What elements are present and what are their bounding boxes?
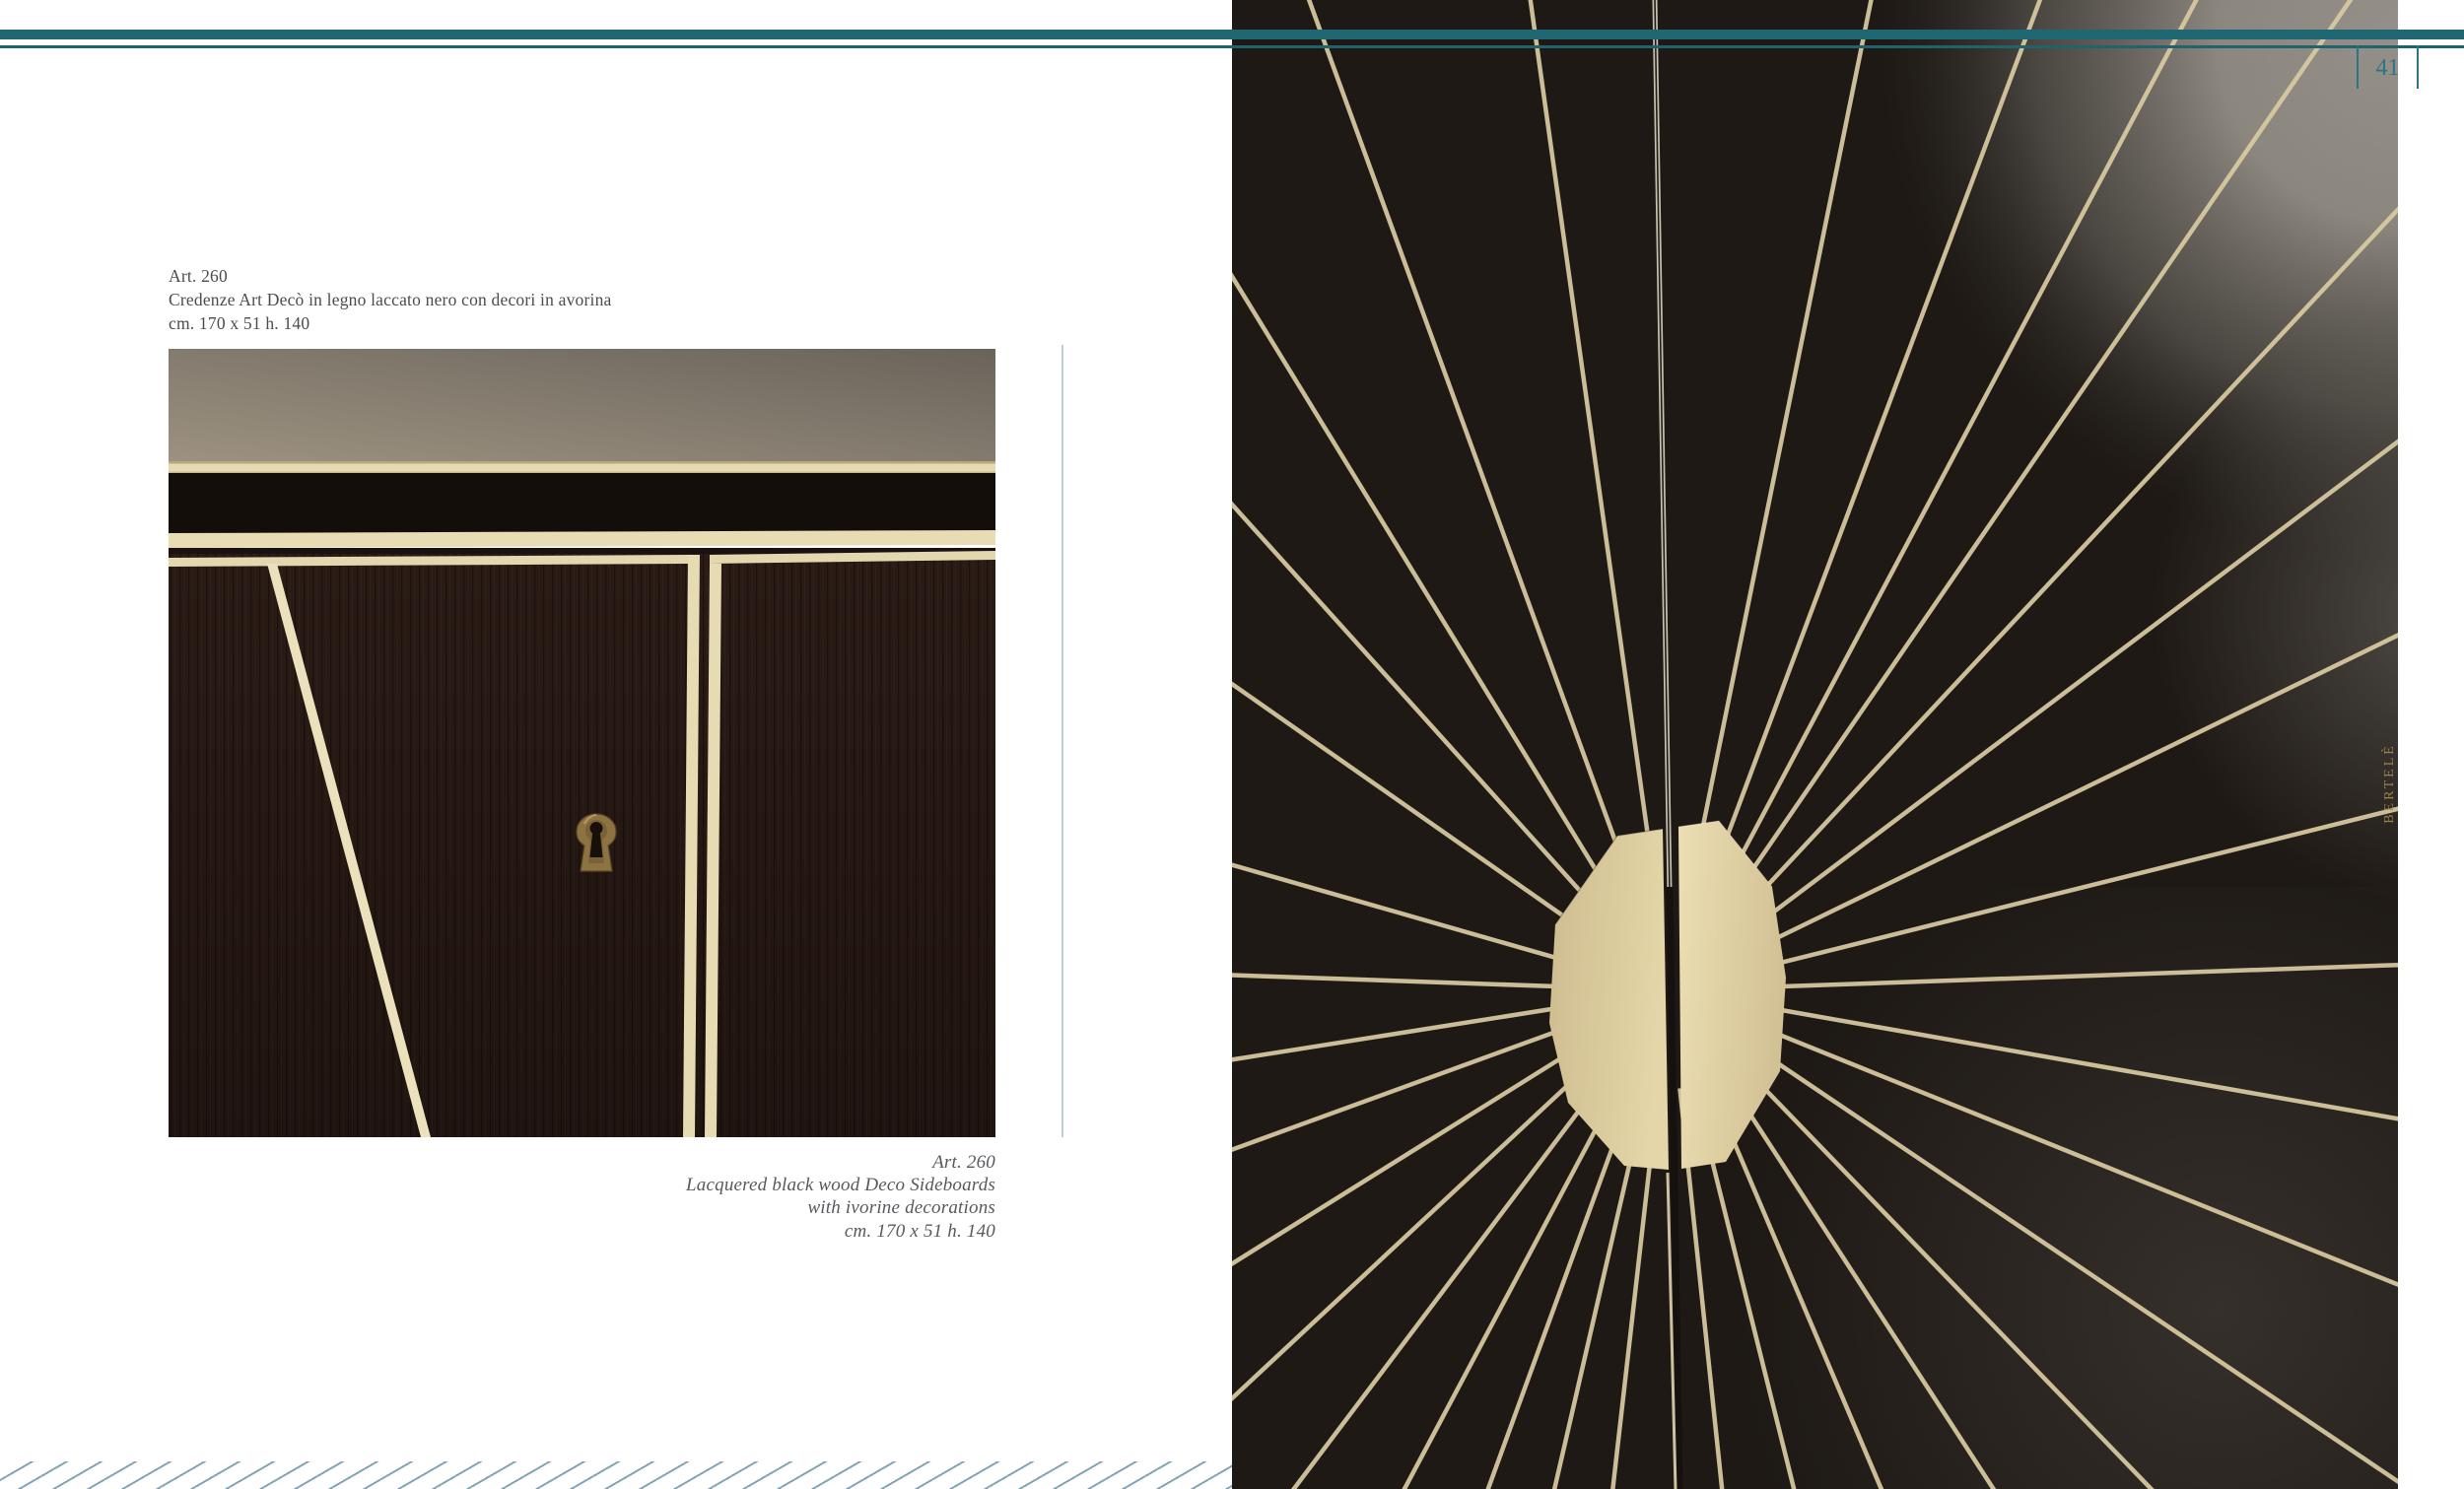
caption-subtitle-en: with ivorine decorations	[686, 1196, 995, 1219]
keyhole-escutcheon	[577, 814, 616, 871]
sunburst-door-illustration	[1232, 0, 2398, 1489]
page-number: 41	[2359, 51, 2417, 85]
photo-tabletop	[169, 349, 995, 461]
header-stripe-thin	[0, 45, 2464, 48]
right-photo-sunburst-detail: BERTELÈ	[1232, 0, 2398, 1489]
header-stripe-thick	[0, 30, 2464, 39]
vertical-divider-rule	[1061, 345, 1063, 1137]
article-description-it: Art. 260 Credenze Art Decò in legno lacc…	[169, 264, 612, 335]
photo-black-band	[169, 473, 995, 533]
sideboard-detail-illustration	[169, 349, 995, 1137]
caption-en: Art. 260 Lacquered black wood Deco Sideb…	[686, 1151, 995, 1243]
caption-number-en: Art. 260	[686, 1151, 995, 1174]
article-title-it: Credenze Art Decò in legno laccato nero …	[169, 288, 612, 311]
catalog-spread: Art. 260 Credenze Art Decò in legno lacc…	[0, 0, 2464, 1489]
caption-title-en: Lacquered black wood Deco Sideboards	[686, 1174, 995, 1196]
article-number-it: Art. 260	[169, 264, 612, 288]
hatch-pattern-strip	[0, 1461, 1232, 1489]
caption-dimensions-en: cm. 170 x 51 h. 140	[686, 1220, 995, 1243]
left-photo-sideboard-detail	[169, 349, 995, 1137]
article-dimensions-it: cm. 170 x 51 h. 140	[169, 311, 612, 335]
brand-watermark: BERTELÈ	[2382, 705, 2398, 862]
page-number-rule-right	[2417, 45, 2419, 89]
